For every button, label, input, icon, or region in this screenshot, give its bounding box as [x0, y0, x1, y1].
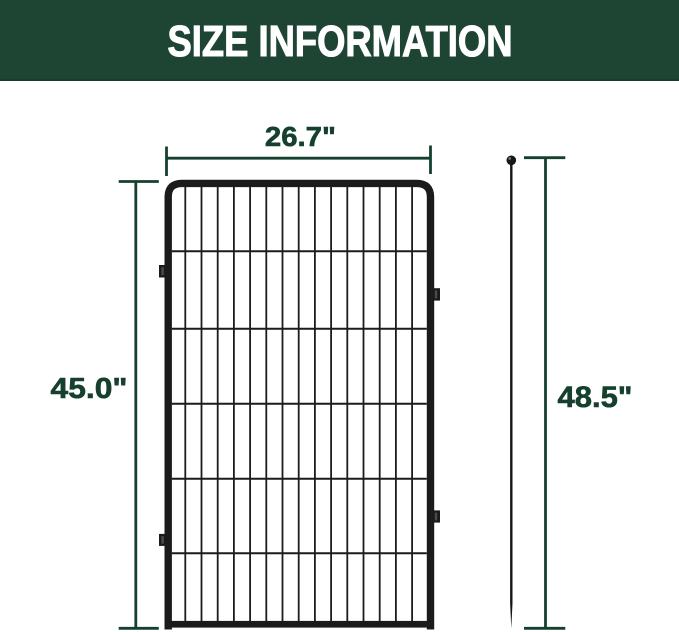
svg-text:48.5": 48.5" — [558, 381, 633, 414]
svg-text:SIZE INFORMATION: SIZE INFORMATION — [168, 17, 513, 66]
svg-text:45.0": 45.0" — [51, 373, 128, 405]
svg-text:26.7": 26.7" — [265, 121, 336, 152]
